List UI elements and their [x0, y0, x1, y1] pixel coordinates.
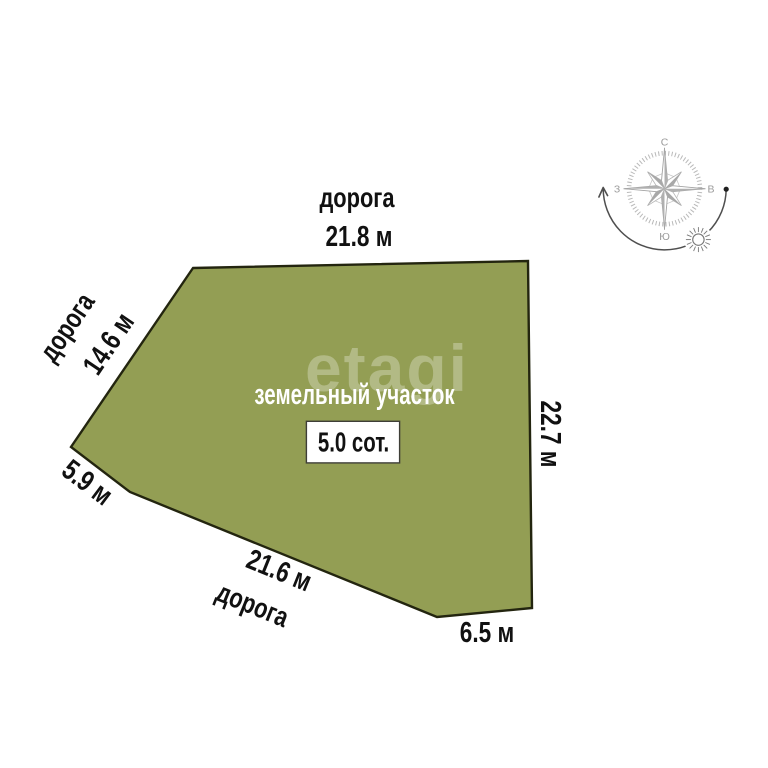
- svg-text:21.8 м: 21.8 м: [325, 219, 392, 252]
- svg-text:С: С: [661, 137, 669, 149]
- svg-text:Ю: Ю: [659, 231, 670, 243]
- svg-text:дорога: дорога: [319, 182, 395, 213]
- svg-text:В: В: [707, 184, 714, 196]
- svg-text:5.0 сот.: 5.0 сот.: [318, 428, 389, 459]
- svg-text:6.5 м: 6.5 м: [460, 615, 514, 648]
- svg-text:земельный участок: земельный участок: [254, 380, 455, 411]
- svg-text:З: З: [614, 184, 620, 196]
- svg-text:22.7 м: 22.7 м: [534, 400, 567, 467]
